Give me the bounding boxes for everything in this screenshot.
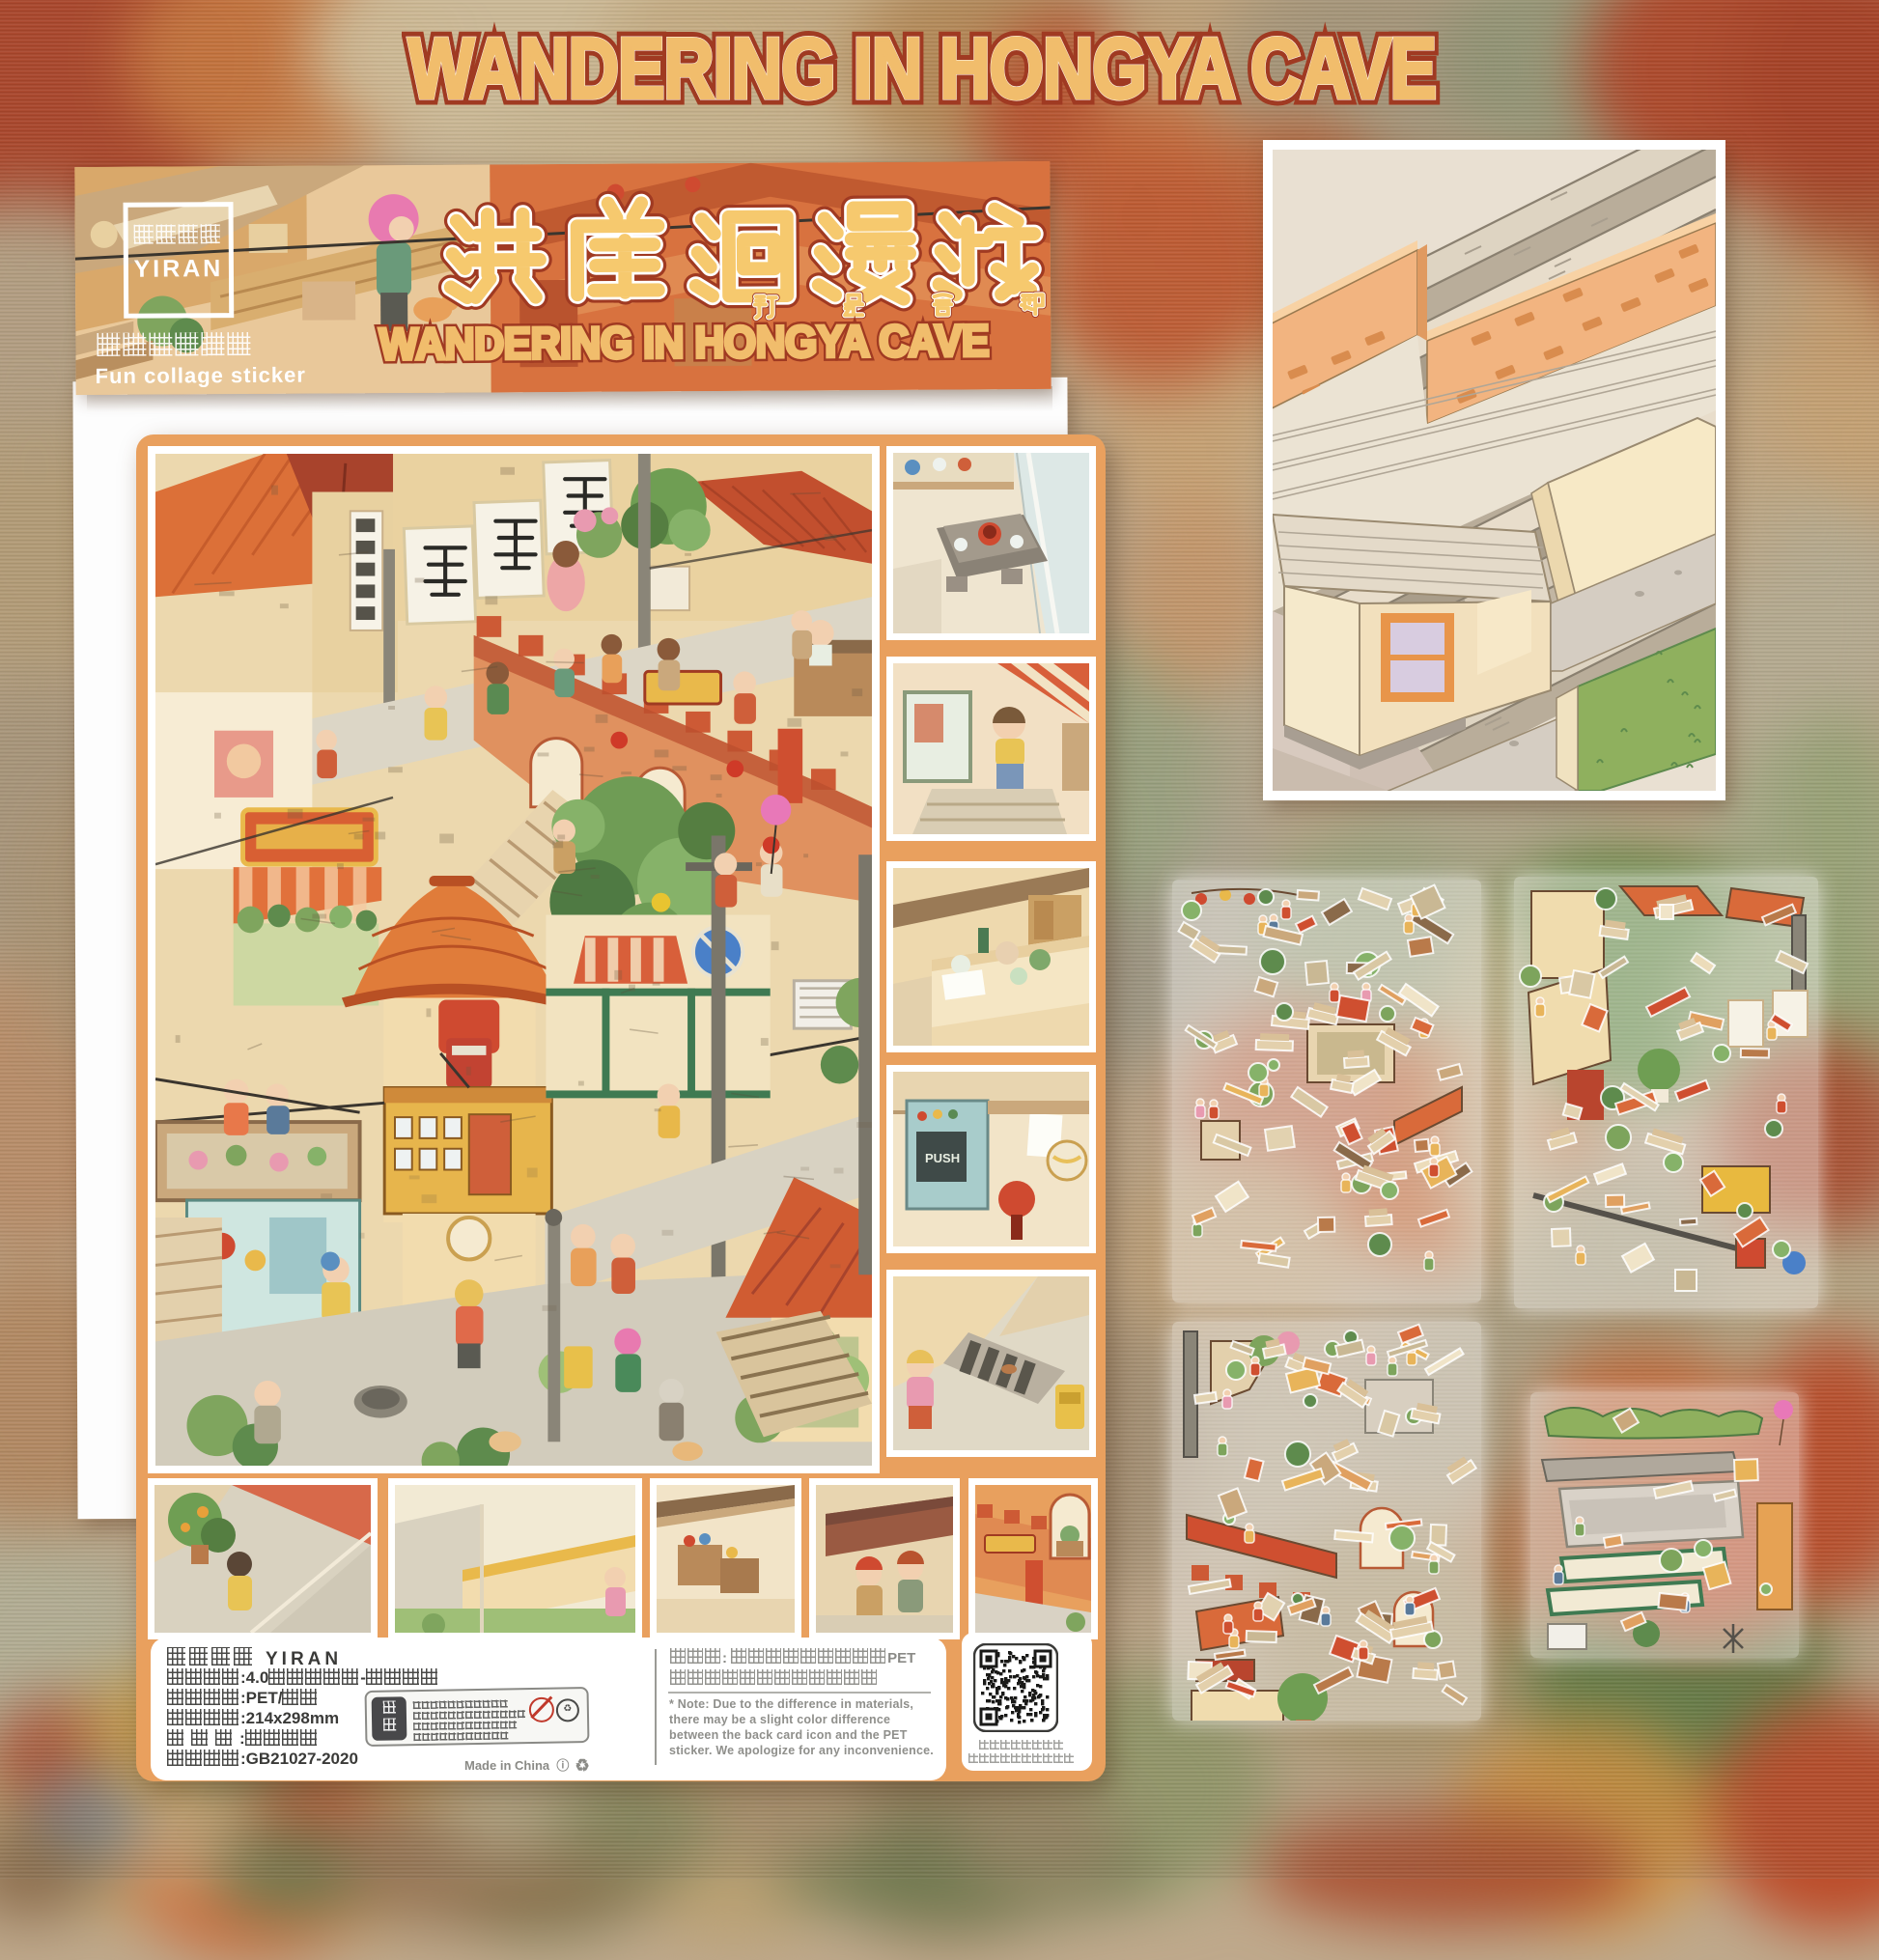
svg-text:PUSH: PUSH <box>925 1151 960 1165</box>
